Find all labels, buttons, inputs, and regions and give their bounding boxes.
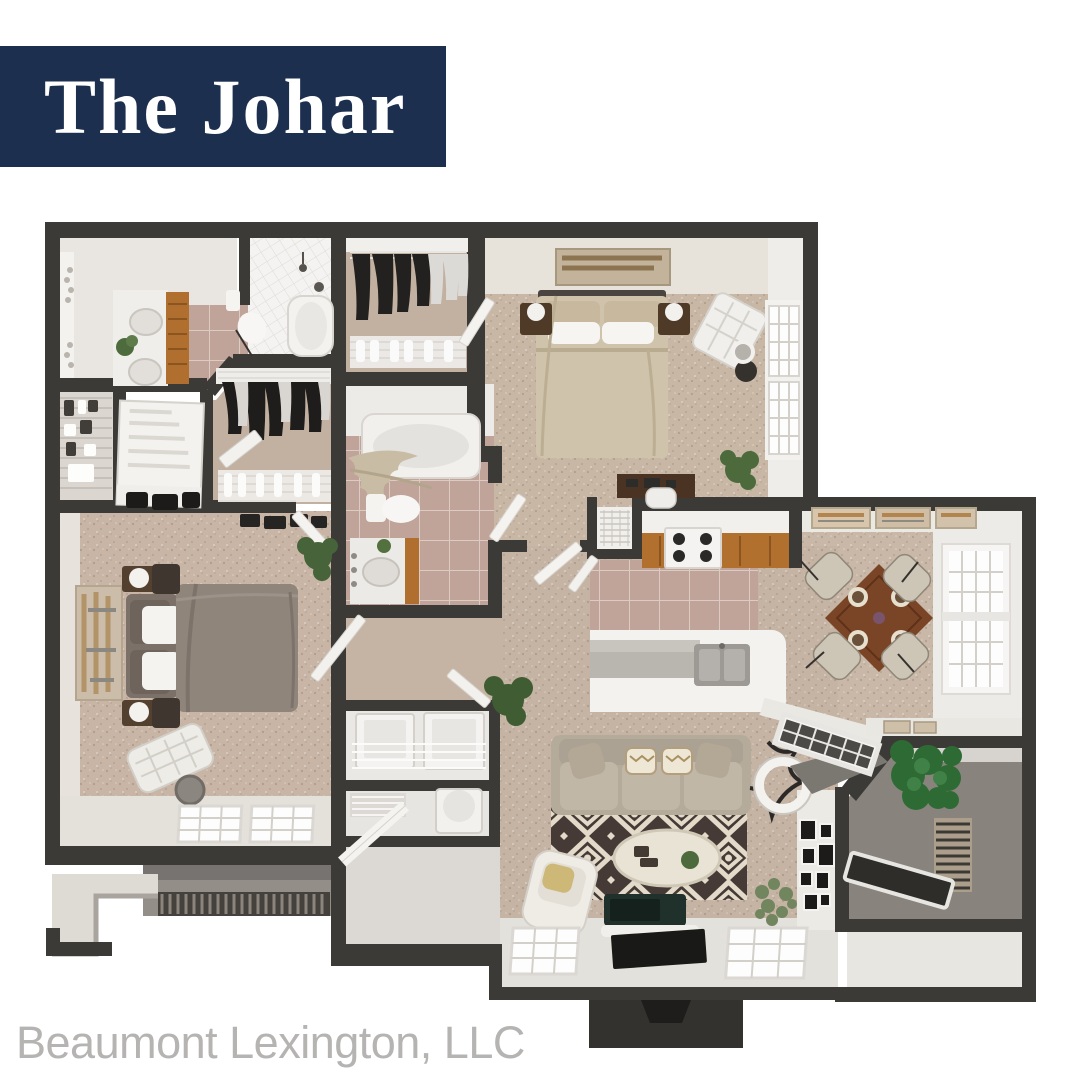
svg-text:Beaumont Lexington, LLC: Beaumont Lexington, LLC <box>16 1017 525 1068</box>
svg-text:The Johar: The Johar <box>44 63 407 150</box>
